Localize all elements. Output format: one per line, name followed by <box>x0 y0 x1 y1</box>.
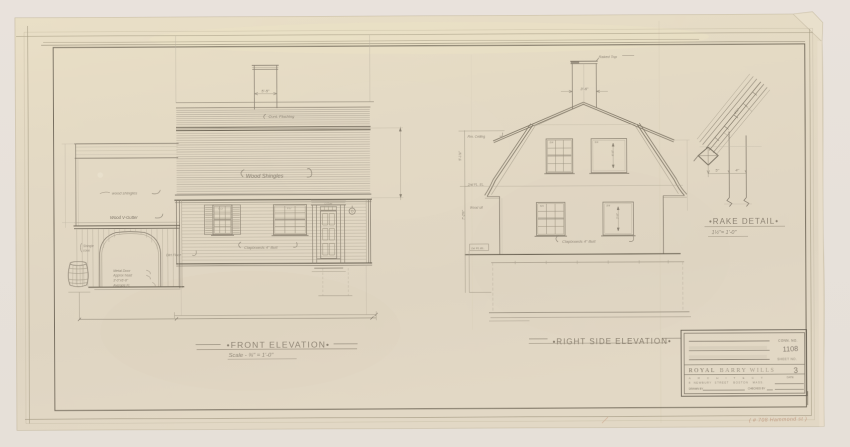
svg-text:8/4: 8/4 <box>540 204 544 208</box>
svg-text:4": 4" <box>735 167 739 172</box>
svg-text:7'-2⅜": 7'-2⅜" <box>461 209 465 219</box>
svg-text:6 Lt: 6 Lt <box>218 207 223 211</box>
svg-text:BARRY: BARRY <box>720 368 748 374</box>
svg-text:Wood sill: Wood sill <box>470 206 483 210</box>
svg-text:2nd FL. EL.: 2nd FL. EL. <box>467 183 485 187</box>
svg-text:5": 5" <box>715 167 719 172</box>
svg-text:•RIGHT SIDE ELEVATION•: •RIGHT SIDE ELEVATION• <box>553 337 672 347</box>
svg-text:Scale - ¾" = 1'-0": Scale - ¾" = 1'-0" <box>229 353 275 359</box>
svg-text:9/4: 9/4 <box>595 140 599 144</box>
svg-text:3: 3 <box>793 366 798 375</box>
svg-text:6'-0": 6'-0" <box>610 149 614 156</box>
svg-text:DATE: DATE <box>787 375 794 379</box>
svg-text:Approx head: Approx head <box>112 273 132 277</box>
svg-text:Dirt Floor: Dirt Floor <box>166 253 182 257</box>
svg-text:5'-1¾": 5'-1¾" <box>458 150 462 160</box>
svg-text:Rm. Ceiling: Rm. Ceiling <box>468 135 486 139</box>
svg-text:Shingle: Shingle <box>83 244 94 248</box>
svg-text:cove: cove <box>83 249 90 253</box>
svg-text:ROYAL: ROYAL <box>689 368 716 374</box>
svg-text:Wood V-Gutter: Wood V-Gutter <box>110 215 138 220</box>
svg-text:1½"= 1'-0": 1½"= 1'-0" <box>712 229 738 236</box>
svg-text:5'-5": 5'-5" <box>261 88 270 93</box>
svg-text:CHECKED BY: CHECKED BY <box>748 387 766 391</box>
svg-text:A R C H I T E C T: A R C H I T E C T <box>689 376 766 380</box>
svg-text:9 Lt: 9 Lt <box>287 206 292 210</box>
svg-text:1108: 1108 <box>782 344 798 354</box>
svg-text:wood shingles: wood shingles <box>112 191 137 196</box>
svg-text:3'-0"x6'-8": 3'-0"x6'-8" <box>113 279 129 283</box>
svg-text:Raked Top: Raked Top <box>599 55 617 59</box>
svg-text:DRAWN BY: DRAWN BY <box>689 387 704 391</box>
svg-text:Clapboards 4" Butt: Clapboards 4" Butt <box>244 245 278 250</box>
svg-text:8/4: 8/4 <box>550 140 554 144</box>
svg-text:Metal Door: Metal Door <box>113 269 131 273</box>
svg-text:2'-8": 2'-8" <box>616 212 620 220</box>
svg-text:Clapboards 4" Butt: Clapboards 4" Butt <box>562 239 596 244</box>
svg-text:3'-6": 3'-6" <box>580 86 589 91</box>
svg-text:SHEET NO.: SHEET NO. <box>777 357 797 361</box>
svg-text:CONN. NO.: CONN. NO. <box>778 338 798 342</box>
svg-text:•RAKE DETAIL•: •RAKE DETAIL• <box>709 217 779 226</box>
svg-text:WILLS: WILLS <box>750 368 776 374</box>
svg-text:1st FL.EL.: 1st FL.EL. <box>471 246 485 250</box>
svg-text:8/4: 8/4 <box>606 203 610 207</box>
svg-text:Cont. Flashing: Cont. Flashing <box>268 114 295 119</box>
svg-text:Wood Shingles: Wood Shingles <box>246 174 284 180</box>
svg-text:Lt Over: Lt Over <box>324 203 332 206</box>
svg-text:Average Fl.: Average Fl. <box>112 283 130 287</box>
svg-text:•FRONT ELEVATION•: •FRONT ELEVATION• <box>227 339 331 350</box>
svg-text:8 NEWBURY STREET BOSTON: 8 NEWBURY STREET BOSTON MASS. <box>689 380 765 384</box>
